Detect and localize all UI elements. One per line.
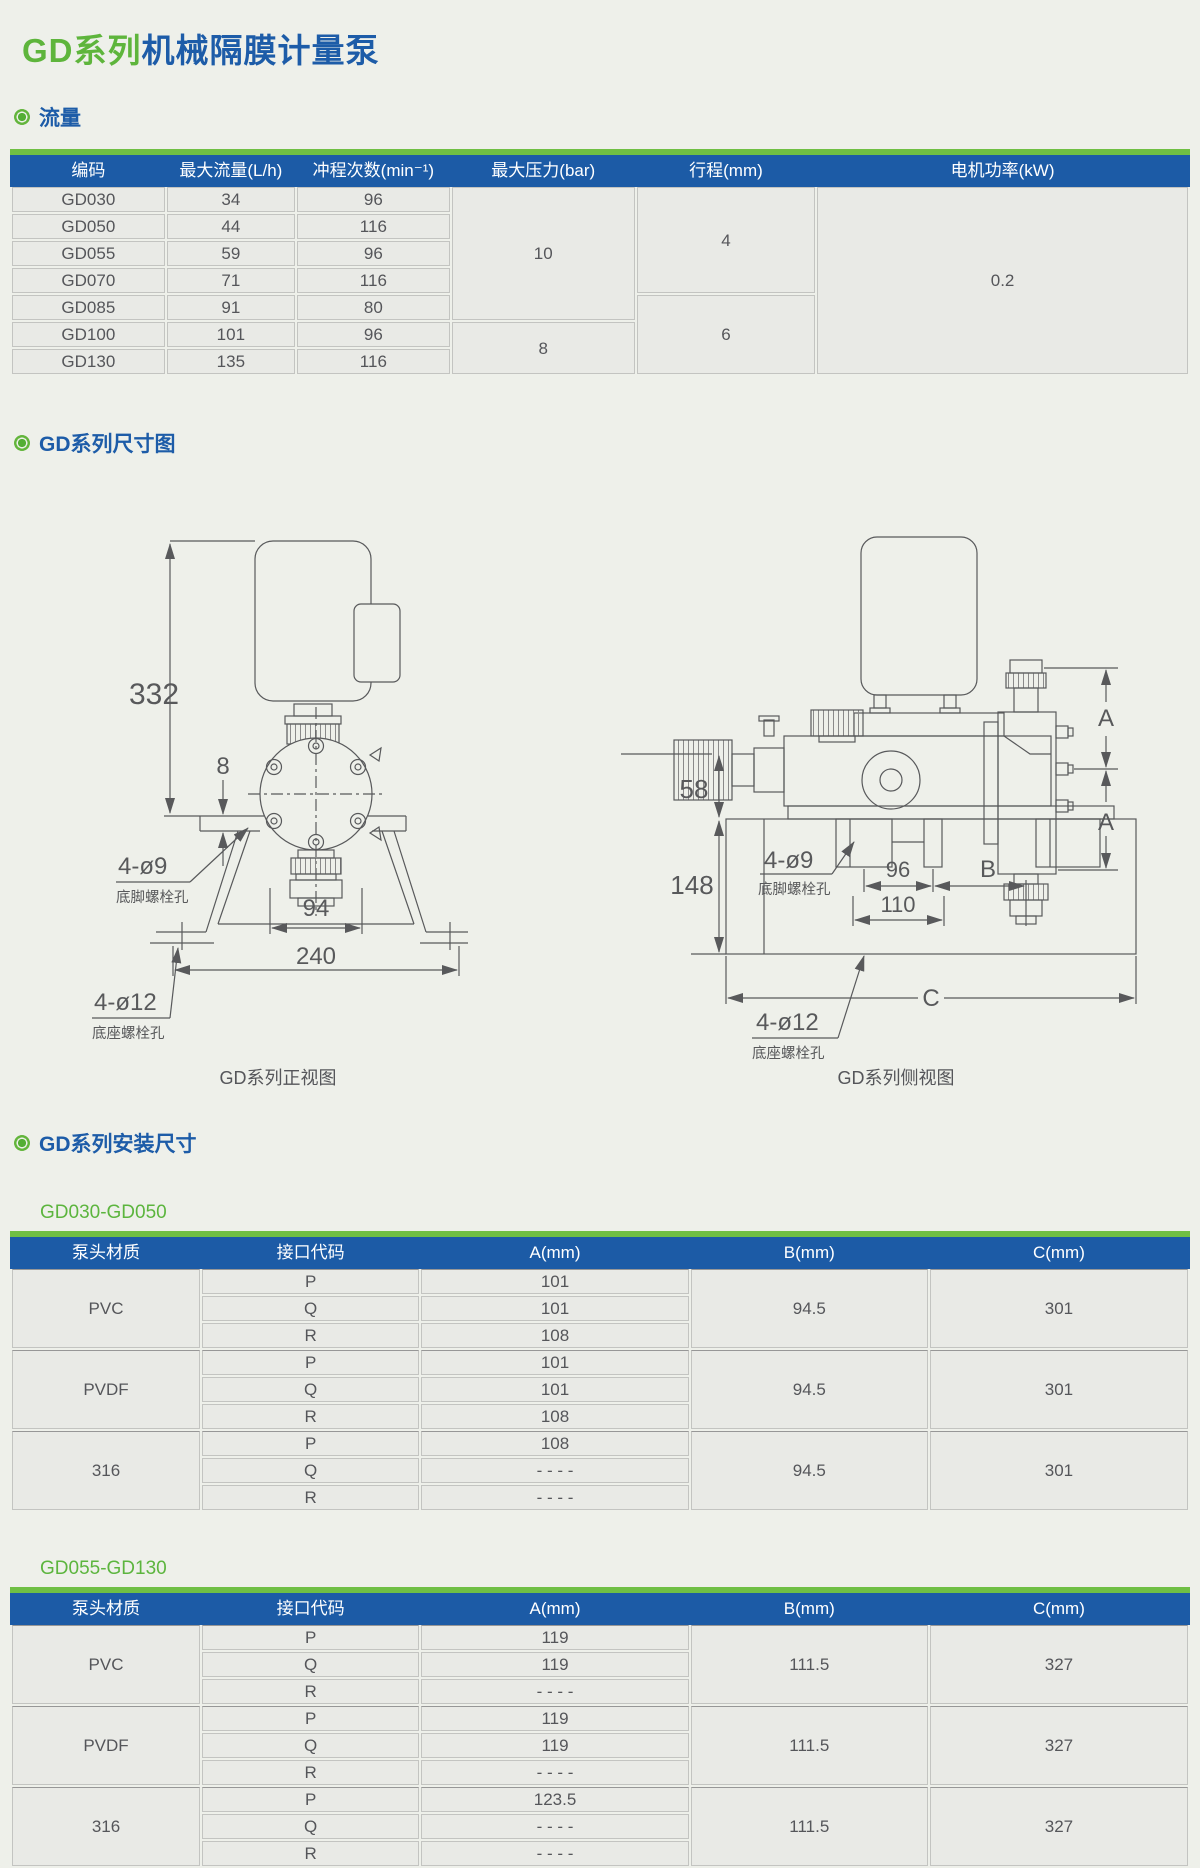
cell-b: 111.5 (691, 1625, 928, 1704)
cell: 101 (421, 1350, 688, 1375)
section-bullet-icon (14, 1135, 30, 1151)
section-bullet-icon (14, 435, 30, 451)
cell: 101 (167, 322, 295, 347)
motor-outline (861, 537, 977, 695)
dim-332-label: 332 (129, 678, 179, 711)
cell: 101 (421, 1269, 688, 1294)
col-header: C(mm) (930, 1239, 1188, 1267)
cell: Q (202, 1458, 419, 1483)
range-label-gd055-gd130: GD055-GD130 (40, 1558, 1200, 1580)
terminal-box (354, 604, 400, 682)
cell-pressure: 10 (452, 187, 635, 320)
dim-58-label: 58 (680, 774, 709, 804)
foot-hole-leader (832, 842, 854, 874)
cell-material: 316 (12, 1431, 200, 1510)
col-header: B(mm) (691, 1595, 928, 1623)
cell: R (202, 1323, 419, 1348)
col-header: A(mm) (421, 1239, 688, 1267)
cell: 34 (167, 187, 295, 212)
range-label-gd030-gd050: GD030-GD050 (40, 1202, 1200, 1224)
cell: R (202, 1841, 419, 1866)
col-header: B(mm) (691, 1239, 928, 1267)
cell: 44 (167, 214, 295, 239)
cell-b: 111.5 (691, 1787, 928, 1866)
base-hole-leader (170, 948, 178, 1018)
dim-96-label: 96 (886, 857, 910, 882)
cell: 101 (421, 1296, 688, 1321)
install-header-row: 泵头材质 接口代码 A(mm) B(mm) C(mm) (12, 1595, 1188, 1623)
dim-C-label: C (922, 985, 939, 1012)
col-header: A(mm) (421, 1595, 688, 1623)
cell: 119 (421, 1625, 688, 1650)
install-table-2-wrap: 泵头材质 接口代码 A(mm) B(mm) C(mm) PVC P 119 11… (10, 1587, 1190, 1868)
cell-c: 301 (930, 1269, 1188, 1348)
flow-table-wrap: 编码 最大流量(L/h) 冲程次数(min⁻¹) 最大压力(bar) 行程(mm… (10, 149, 1190, 376)
front-view-geometry (92, 541, 468, 1018)
base-hole-note: 底座螺栓孔 (92, 1025, 165, 1042)
col-header: 电机功率(kW) (817, 157, 1188, 185)
cell-material: PVC (12, 1625, 200, 1704)
cell-material: 316 (12, 1787, 200, 1866)
cell: 108 (421, 1323, 688, 1348)
cell: Q (202, 1652, 419, 1677)
cell: 116 (297, 268, 450, 293)
cell: 119 (421, 1733, 688, 1758)
cell: - - - - (421, 1679, 688, 1704)
page-title: GD系列机械隔膜计量泵 (22, 24, 1200, 72)
front-view-drawing: 332 8 94 240 4-ø9 底脚螺栓孔 4-ø12 底座螺栓孔 (88, 464, 468, 1084)
dim-A-label-lower: A (1098, 809, 1114, 836)
cell: - - - - (421, 1760, 688, 1785)
foot-hole-label: 4-ø9 (764, 847, 813, 874)
cell: 96 (297, 241, 450, 266)
cell: P (202, 1625, 419, 1650)
foot-hole-label: 4-ø9 (118, 853, 167, 880)
col-header: 泵头材质 (12, 1239, 200, 1267)
cell-c: 301 (930, 1350, 1188, 1429)
cell: 116 (297, 349, 450, 374)
flow-table: 编码 最大流量(L/h) 冲程次数(min⁻¹) 最大压力(bar) 行程(mm… (10, 155, 1190, 376)
base-hole-note: 底座螺栓孔 (752, 1045, 825, 1062)
cell: P (202, 1706, 419, 1731)
section-dimensions-label: GD系列尺寸图 (39, 428, 176, 458)
cell-material: PVDF (12, 1350, 200, 1429)
dim-240-label: 240 (296, 943, 336, 970)
cell-power: 0.2 (817, 187, 1188, 374)
cell: R (202, 1760, 419, 1785)
cell: 96 (297, 187, 450, 212)
cell: Q (202, 1733, 419, 1758)
cell: 135 (167, 349, 295, 374)
dimension-drawings: 332 8 94 240 4-ø9 底脚螺栓孔 4-ø12 底座螺栓孔 (0, 464, 1200, 1116)
dim-A-label-upper: A (1098, 705, 1114, 732)
cell-b: 94.5 (691, 1350, 928, 1429)
table-row: PVDF P 119 111.5 327 (12, 1706, 1188, 1731)
col-header: C(mm) (930, 1595, 1188, 1623)
col-header: 冲程次数(min⁻¹) (297, 157, 450, 185)
cell: - - - - (421, 1841, 688, 1866)
foot-hole-note: 底脚螺栓孔 (758, 881, 831, 898)
cell-b: 94.5 (691, 1269, 928, 1348)
section-install: GD系列安装尺寸 (14, 1128, 1200, 1158)
section-flow: 流量 (14, 102, 1200, 132)
table-row: PVC P 119 111.5 327 (12, 1625, 1188, 1650)
cell-material: PVDF (12, 1706, 200, 1785)
cell: - - - - (421, 1485, 688, 1510)
cell-c: 327 (930, 1625, 1188, 1704)
cell-c: 301 (930, 1431, 1188, 1510)
dim-B-label: B (980, 856, 996, 883)
col-header: 最大流量(L/h) (167, 157, 295, 185)
cell: 108 (421, 1431, 688, 1456)
base-hole-label: 4-ø12 (94, 989, 157, 1016)
cell: Q (202, 1296, 419, 1321)
col-header: 接口代码 (202, 1239, 419, 1267)
cell: 108 (421, 1404, 688, 1429)
side-view-caption: GD系列侧视图 (606, 1064, 1186, 1090)
cell: 71 (167, 268, 295, 293)
table-row: PVC P 101 94.5 301 (12, 1269, 1188, 1294)
cell: GD050 (12, 214, 165, 239)
section-flow-label: 流量 (39, 102, 81, 132)
cell: Q (202, 1377, 419, 1402)
foot-hole-note: 底脚螺栓孔 (116, 889, 189, 906)
cell: 116 (297, 214, 450, 239)
cell: 91 (167, 295, 295, 320)
dim-94-label: 94 (303, 895, 330, 922)
dim-148-label: 148 (670, 870, 713, 900)
install-header-row: 泵头材质 接口代码 A(mm) B(mm) C(mm) (12, 1239, 1188, 1267)
install-table-1: 泵头材质 接口代码 A(mm) B(mm) C(mm) PVC P 101 94… (10, 1237, 1190, 1512)
col-header: 泵头材质 (12, 1595, 200, 1623)
cell: - - - - (421, 1458, 688, 1483)
cell-b: 94.5 (691, 1431, 928, 1510)
cell: 96 (297, 322, 450, 347)
cell: GD085 (12, 295, 165, 320)
base-hole-leader (838, 956, 864, 1038)
base-hole-label: 4-ø12 (756, 1009, 819, 1036)
cell: GD070 (12, 268, 165, 293)
section-install-label: GD系列安装尺寸 (39, 1128, 197, 1158)
section-dimensions: GD系列尺寸图 (14, 428, 1200, 458)
cell: P (202, 1269, 419, 1294)
cell-stroke: 6 (637, 295, 815, 374)
cell: P (202, 1350, 419, 1375)
page-title-rest: 机械隔膜计量泵 (142, 32, 380, 69)
foot-hole-leader (190, 828, 248, 882)
cell: 80 (297, 295, 450, 320)
table-row: 316 P 108 94.5 301 (12, 1431, 1188, 1456)
cell: GD100 (12, 322, 165, 347)
cell: 59 (167, 241, 295, 266)
cell: GD030 (12, 187, 165, 212)
side-view-drawing: A A 58 148 96 B 110 C 4-ø9 底脚螺栓孔 4-ø12 底… (606, 464, 1186, 1084)
cell: P (202, 1431, 419, 1456)
cell-b: 111.5 (691, 1706, 928, 1785)
dim-110-label: 110 (880, 892, 915, 917)
cell: 119 (421, 1652, 688, 1677)
front-view-caption: GD系列正视图 (88, 1064, 468, 1090)
cell: Q (202, 1814, 419, 1839)
cell: GD130 (12, 349, 165, 374)
cell-stroke: 4 (637, 187, 815, 293)
col-header: 最大压力(bar) (452, 157, 635, 185)
col-header: 行程(mm) (637, 157, 815, 185)
col-header: 编码 (12, 157, 165, 185)
cell-c: 327 (930, 1787, 1188, 1866)
page-title-series: GD系列 (22, 32, 142, 69)
cell: 101 (421, 1377, 688, 1402)
dim-8-label: 8 (216, 753, 229, 780)
cell: R (202, 1485, 419, 1510)
col-header: 接口代码 (202, 1595, 419, 1623)
install-table-2: 泵头材质 接口代码 A(mm) B(mm) C(mm) PVC P 119 11… (10, 1593, 1190, 1868)
cell-material: PVC (12, 1269, 200, 1348)
cell: R (202, 1679, 419, 1704)
table-row: GD030 34 96 10 4 0.2 (12, 187, 1188, 212)
page: GD系列机械隔膜计量泵 流量 编码 最大流量(L/h) 冲程次数(min⁻¹) … (0, 24, 1200, 1868)
cell-c: 327 (930, 1706, 1188, 1785)
install-table-1-wrap: 泵头材质 接口代码 A(mm) B(mm) C(mm) PVC P 101 94… (10, 1231, 1190, 1512)
cell: 119 (421, 1706, 688, 1731)
cell: - - - - (421, 1814, 688, 1839)
flow-header-row: 编码 最大流量(L/h) 冲程次数(min⁻¹) 最大压力(bar) 行程(mm… (12, 157, 1188, 185)
cell: GD055 (12, 241, 165, 266)
section-bullet-icon (14, 109, 30, 125)
table-row: PVDF P 101 94.5 301 (12, 1350, 1188, 1375)
cell-pressure: 8 (452, 322, 635, 374)
cell: R (202, 1404, 419, 1429)
